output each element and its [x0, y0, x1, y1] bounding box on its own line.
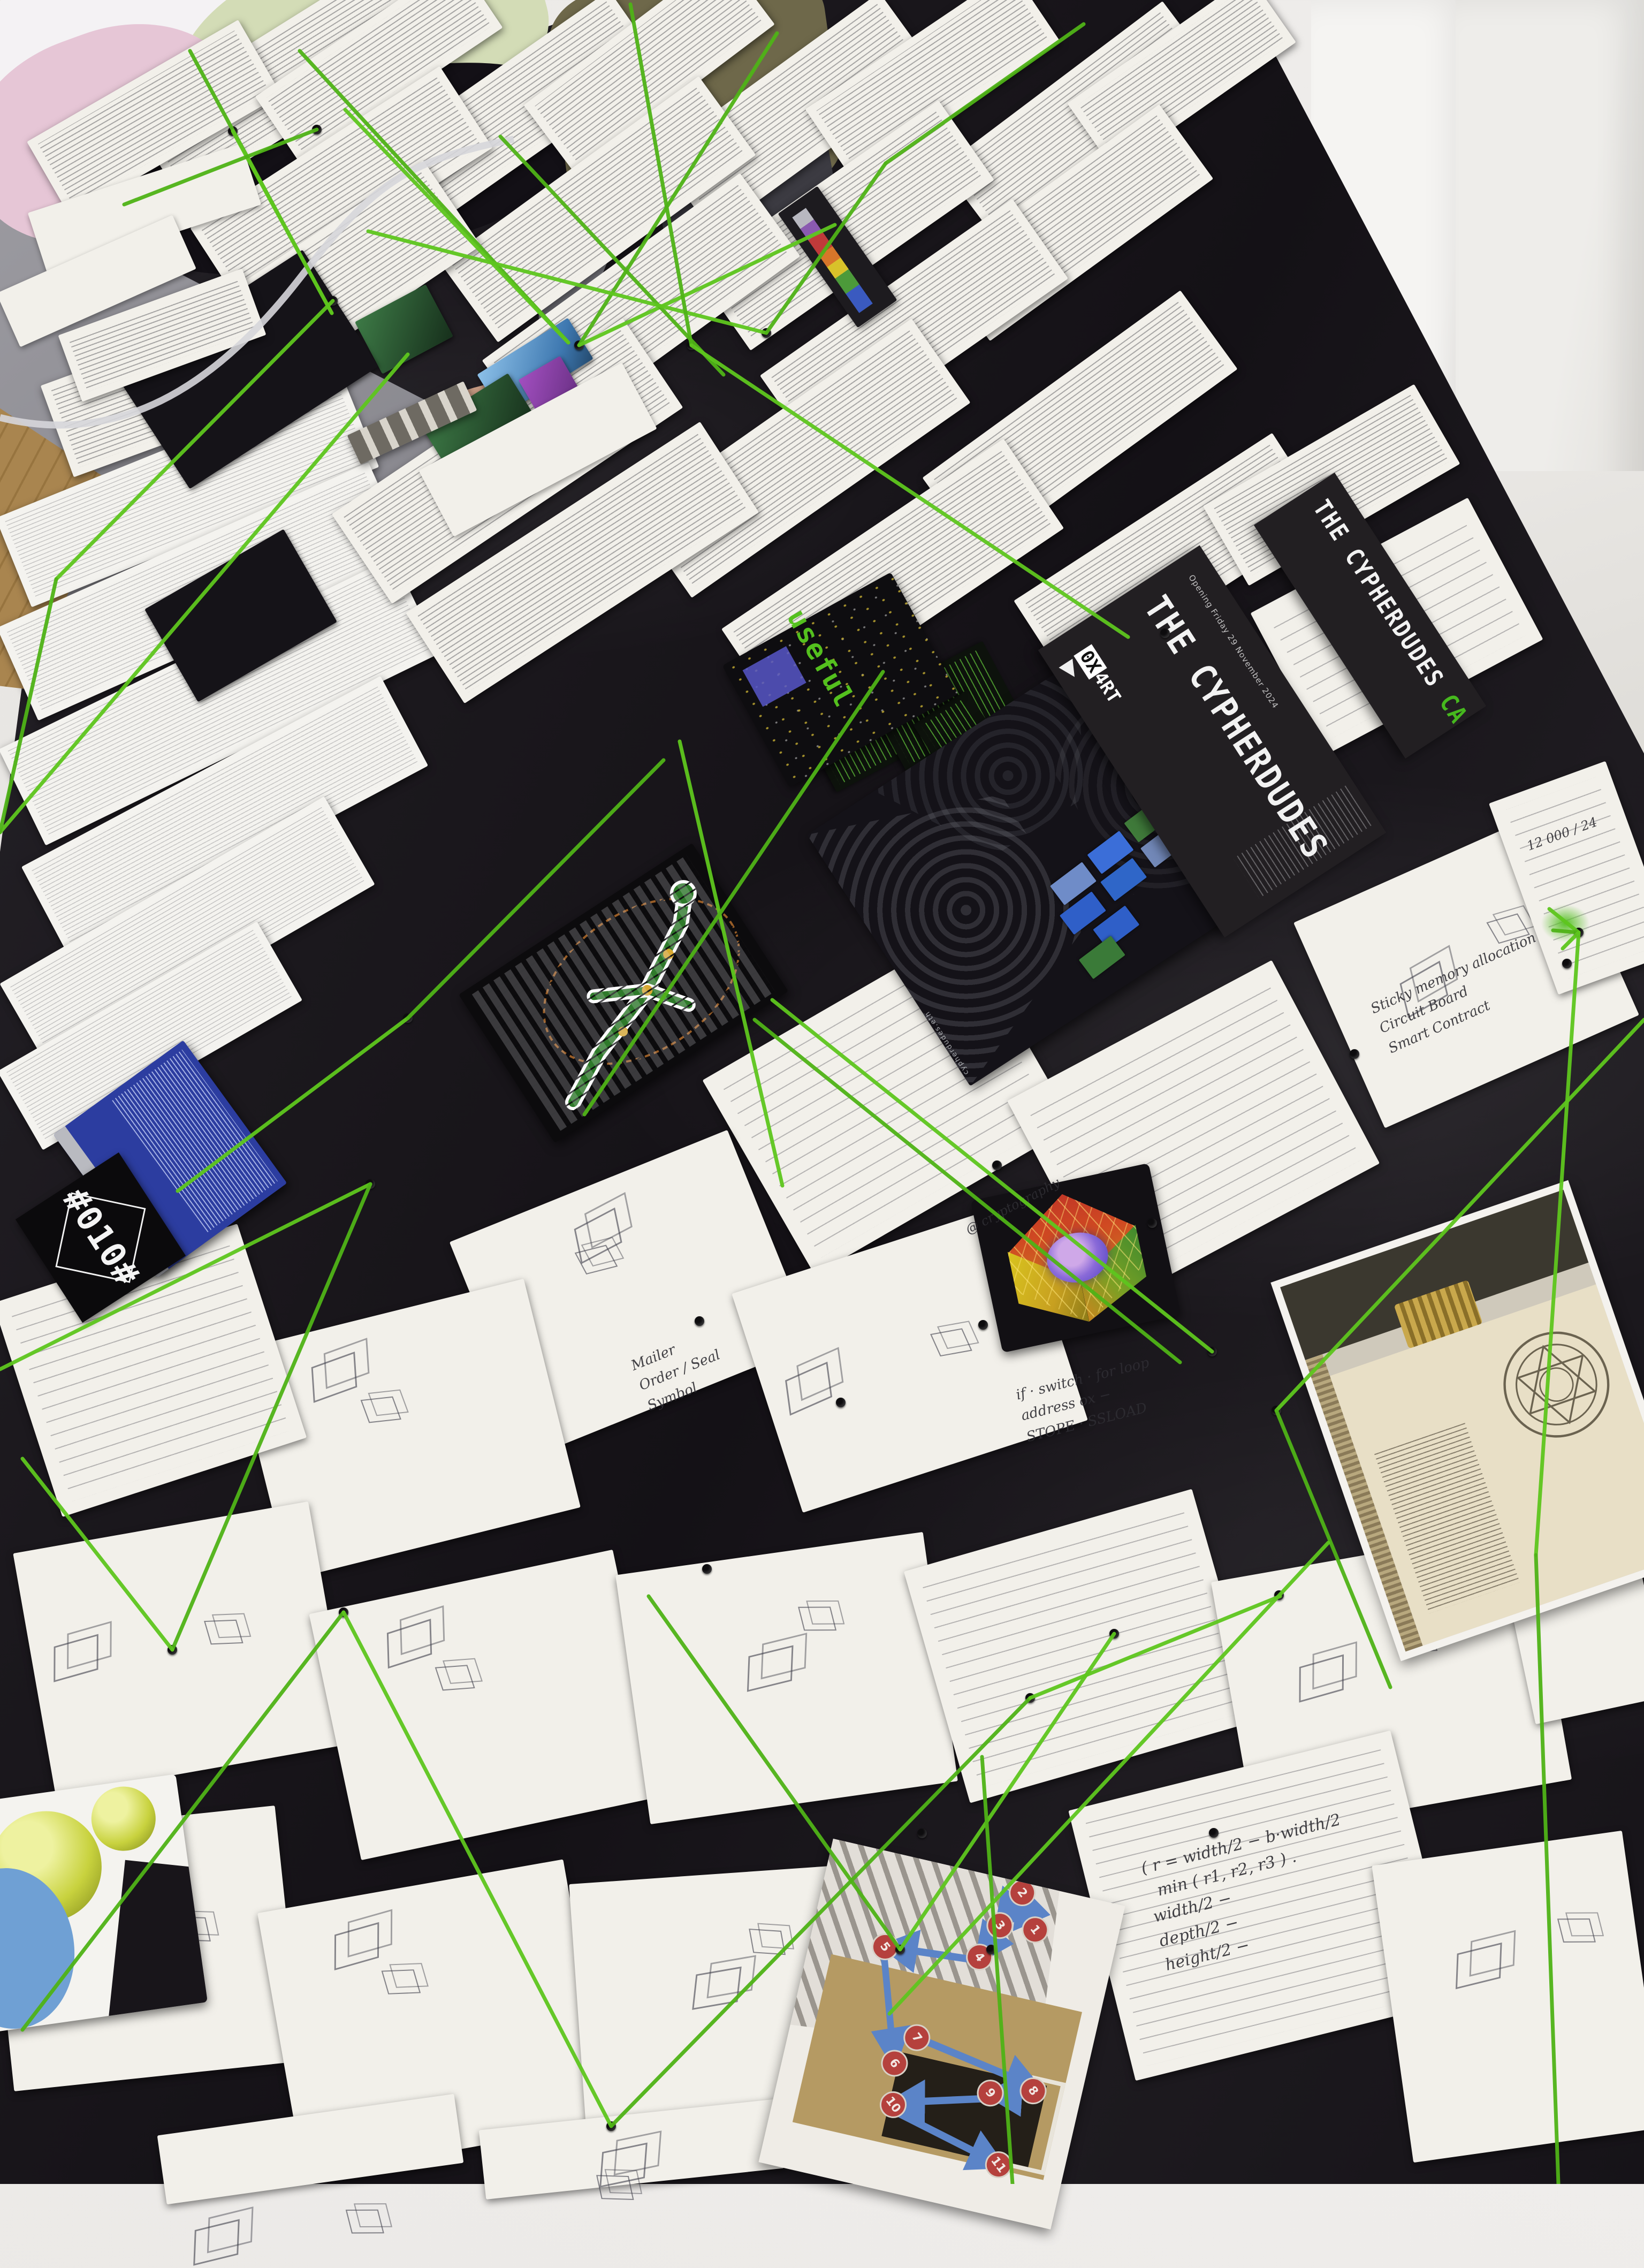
push-pin — [992, 1160, 1002, 1170]
cube-doodle — [435, 1665, 475, 1690]
push-pin — [1274, 1590, 1284, 1600]
cube-doodle — [1456, 1943, 1502, 1989]
blue-arrow — [918, 2040, 1036, 2085]
push-pin — [1574, 928, 1584, 937]
gallery-pillar-back — [1456, 0, 1644, 525]
cube-doodle — [785, 1362, 832, 1416]
push-pin — [895, 1945, 905, 1954]
push-pin — [687, 340, 696, 350]
paper-sketch — [1372, 1831, 1644, 2163]
spheres-card — [0, 1774, 208, 2031]
cube-doodle — [692, 1967, 742, 2010]
push-pin — [1209, 1828, 1219, 1838]
paper-sketch — [13, 1501, 351, 1796]
push-pin — [1207, 1347, 1217, 1356]
yellow-sphere-small — [87, 1782, 160, 1855]
push-pin — [1350, 1049, 1359, 1059]
push-pin — [702, 1564, 712, 1574]
push-pin — [168, 1645, 177, 1655]
cube-doodle — [1557, 1918, 1596, 1943]
push-pin — [1562, 959, 1572, 968]
photo-canvas: { "scene": { "colors": { "string_green":… — [0, 0, 1644, 2184]
push-pin — [836, 1398, 846, 1407]
push-pin — [695, 1316, 704, 1326]
push-pin — [1160, 628, 1170, 638]
cube-doodle — [1299, 1654, 1344, 1702]
push-pin — [986, 1945, 996, 1954]
cube-doodle — [747, 1645, 794, 1691]
room-card — [1079, 936, 1125, 979]
push-pin — [917, 1829, 927, 1838]
cube-doodle — [334, 1922, 379, 1970]
push-pin — [228, 126, 238, 136]
push-pin — [366, 1179, 375, 1189]
cube-doodle — [596, 2175, 634, 2200]
cube-doodle — [311, 1352, 357, 1403]
cube-doodle — [382, 1969, 421, 1994]
book-page — [1330, 1284, 1644, 1645]
cube-doodle — [798, 1607, 836, 1631]
push-pin — [606, 2121, 616, 2131]
push-pin — [339, 1607, 348, 1617]
blue-arrow — [890, 2112, 1001, 2163]
cube-doodle — [193, 2219, 240, 2265]
cube-doodle — [361, 1397, 401, 1423]
cube-doodle — [930, 1328, 972, 1356]
cube-doodle — [346, 2210, 384, 2234]
push-pin — [762, 328, 771, 338]
push-pin — [978, 1320, 988, 1330]
cube-doodle — [204, 1620, 243, 1645]
cube-doodle — [387, 1619, 432, 1668]
push-pin — [574, 340, 584, 350]
push-pin — [1025, 1693, 1035, 1703]
blue-arrow — [899, 2080, 986, 2121]
push-pin — [1147, 1218, 1157, 1228]
blue-arrow — [891, 1941, 975, 1966]
string-tassel — [1541, 905, 1589, 942]
push-pin — [312, 125, 322, 134]
pentacle-diagram — [1481, 1310, 1631, 1460]
push-pin — [1109, 1629, 1119, 1639]
push-pin — [1272, 1406, 1281, 1415]
cube-doodle — [749, 1929, 786, 1955]
push-pin — [403, 1013, 413, 1023]
push-pin — [328, 296, 338, 306]
cube-doodle — [54, 1634, 98, 1682]
